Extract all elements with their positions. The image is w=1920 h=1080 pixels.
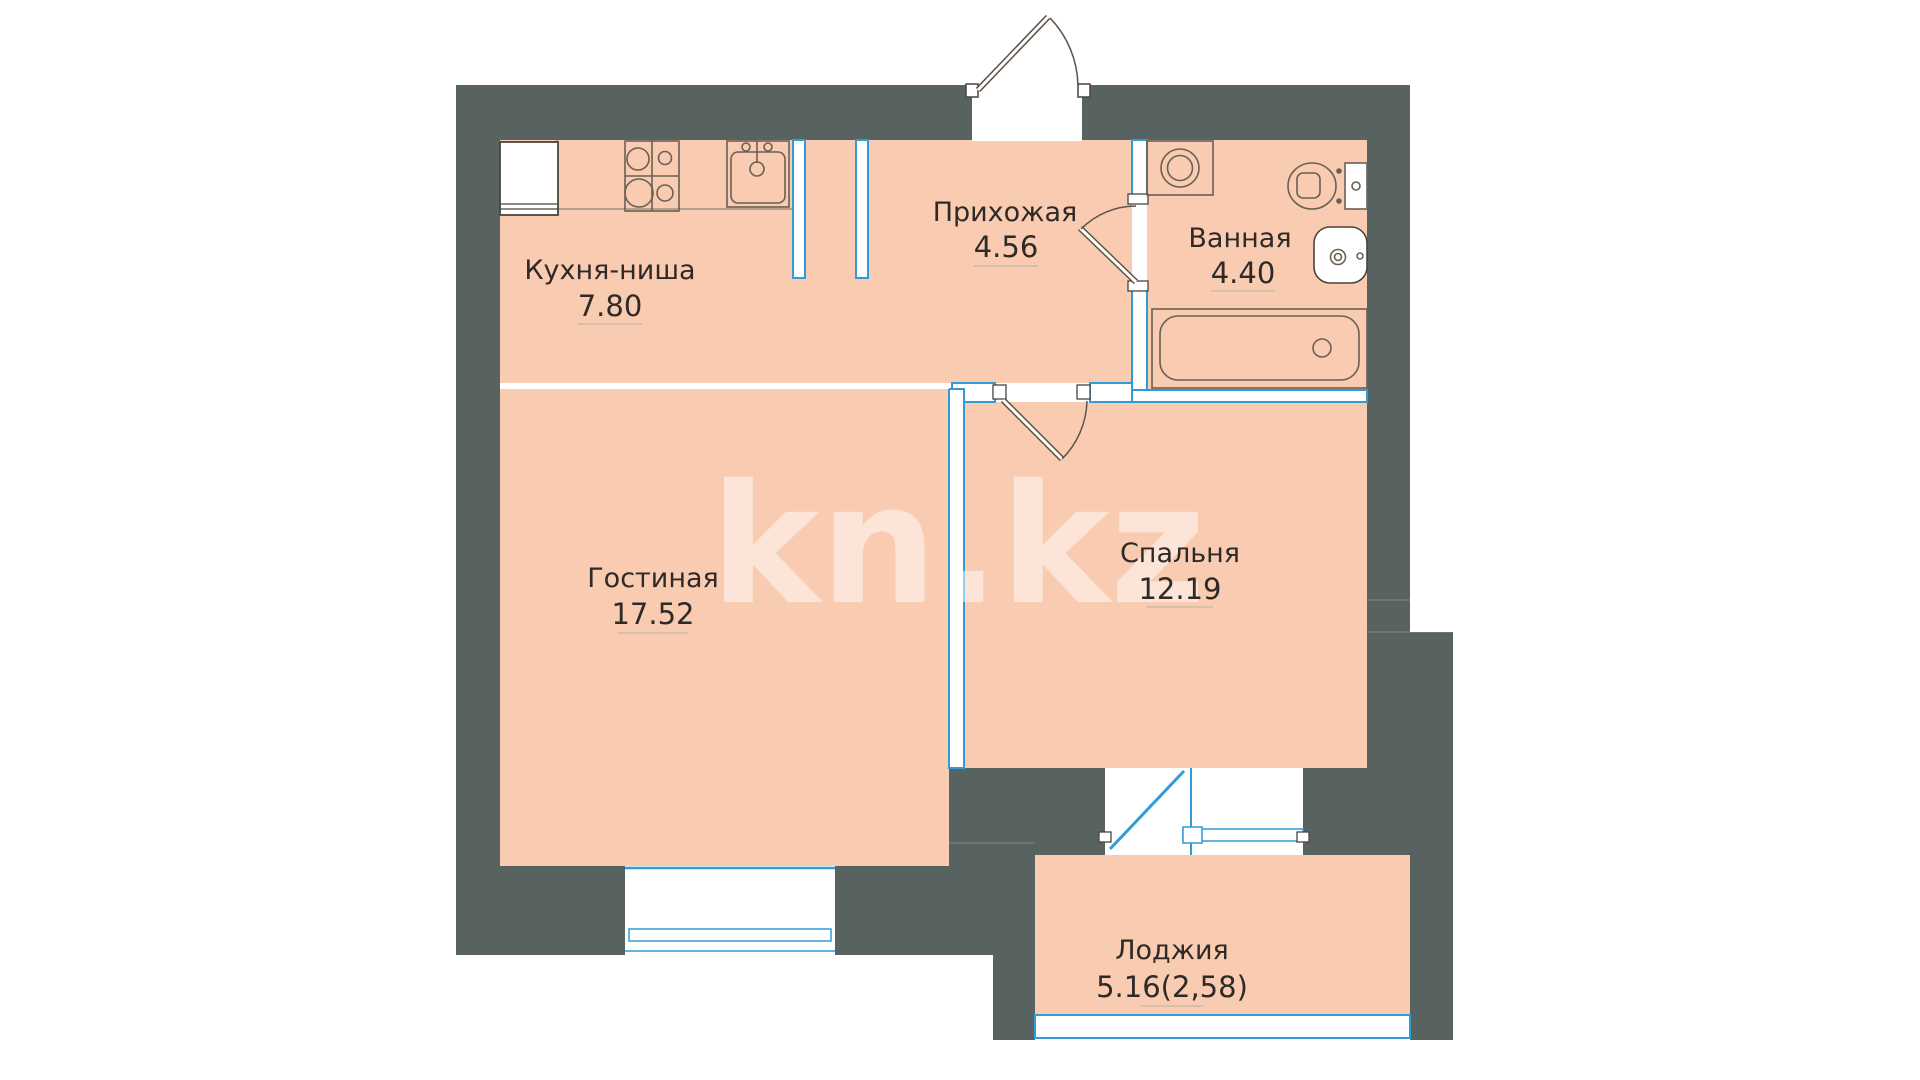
living-room-window	[625, 866, 835, 955]
loggia-name: Лоджия	[1115, 935, 1229, 966]
loggia-window	[1035, 1015, 1410, 1038]
wall-right-lower	[1367, 632, 1453, 768]
wall-bedroom-bottom-right	[1303, 768, 1453, 855]
kitchen-partition-stub-2	[856, 140, 868, 278]
entrance-door	[966, 17, 1090, 141]
wall-loggia-left-leg	[993, 955, 1035, 1040]
balcony-door-window	[1099, 768, 1309, 855]
hall-bath-partition-upper	[1132, 140, 1147, 200]
kitchen-partition-stub-1	[793, 140, 805, 278]
bathroom-area: 4.40	[1211, 256, 1276, 290]
entrance-door-leaf	[978, 17, 1048, 90]
wall-top-right-segment	[1082, 85, 1410, 140]
wall-living-bottom-left	[456, 866, 625, 955]
kitchen-area: 7.80	[578, 289, 643, 323]
floor-plan: kn.kz	[0, 0, 1920, 1080]
loggia-area: 5.16(2,58)	[1096, 970, 1248, 1004]
hall-bath-partition-lower	[1132, 285, 1147, 390]
hallway-name: Прихожая	[933, 197, 1078, 228]
wall-top-left-segment	[456, 85, 972, 140]
wall-left	[456, 85, 500, 955]
wall-living-bottom-right	[835, 866, 1035, 955]
door-jamb	[1128, 281, 1148, 291]
hallway-area: 4.56	[974, 230, 1039, 264]
wall-right-upper	[1367, 85, 1410, 632]
wall-loggia-right	[1410, 855, 1453, 1040]
kitchen-name: Кухня-ниша	[524, 255, 695, 286]
bedroom-name: Спальня	[1120, 538, 1240, 569]
door-jamb	[1077, 385, 1090, 399]
window-sill	[629, 929, 831, 941]
living-name: Гостиная	[587, 563, 719, 594]
door-jamb	[993, 385, 1006, 399]
kitchen-living-divider-line	[500, 383, 949, 389]
bathroom-name: Ванная	[1188, 223, 1291, 254]
door-jamb	[1128, 194, 1148, 204]
hall-bedroom-partition-right	[1090, 383, 1132, 402]
entrance-door-arc	[1050, 18, 1078, 86]
bedroom-area: 12.19	[1138, 572, 1221, 606]
bath-bedroom-partition	[1132, 390, 1367, 402]
living-area: 17.52	[611, 597, 694, 631]
fridge-icon	[500, 142, 558, 215]
door-jamb	[1078, 84, 1090, 97]
loggia-label: Лоджия 5.16(2,58)	[1096, 935, 1248, 1006]
floor-plan-page: kn.kz	[0, 0, 1920, 1080]
door-jamb	[966, 84, 978, 97]
wash-basin-icon	[1314, 227, 1367, 283]
